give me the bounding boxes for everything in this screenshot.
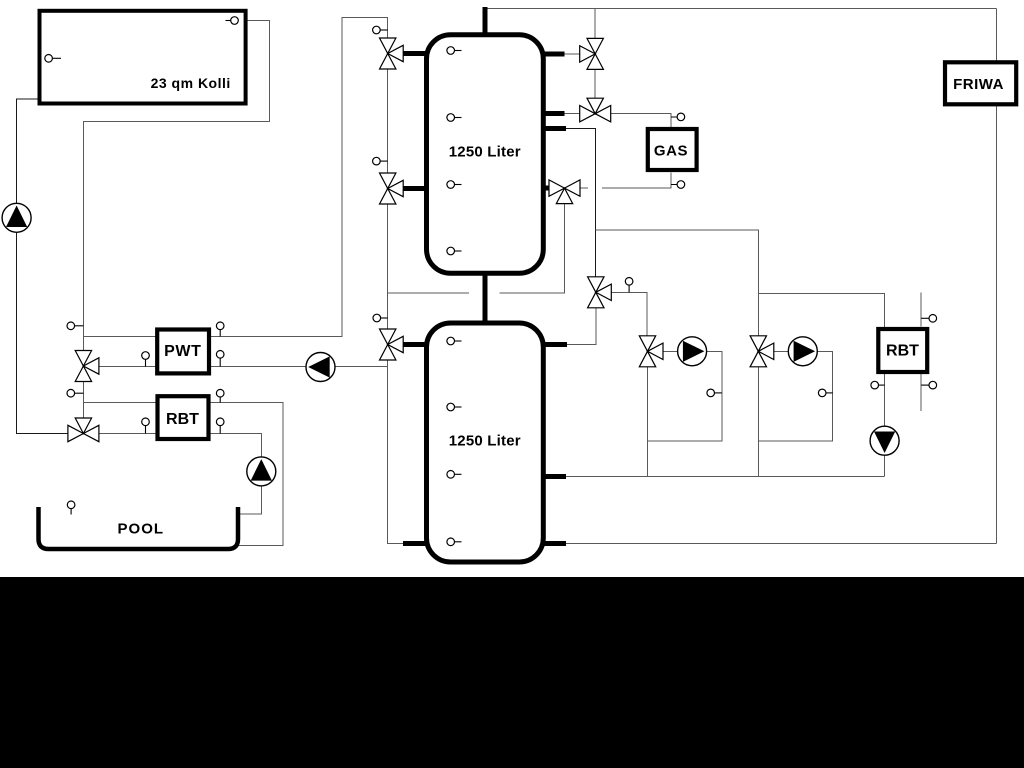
svg-text:POOL: POOL (118, 520, 165, 537)
svg-text:1250 Liter: 1250 Liter (449, 144, 521, 161)
svg-text:RBT: RBT (886, 343, 919, 360)
svg-text:GAS: GAS (654, 142, 688, 159)
svg-text:PWT: PWT (164, 343, 201, 360)
svg-text:23 qm Kolli: 23 qm Kolli (151, 75, 231, 91)
svg-text:1250 Liter: 1250 Liter (449, 432, 521, 449)
svg-text:RBT: RBT (166, 411, 199, 428)
svg-text:FRIWA: FRIWA (953, 76, 1004, 93)
